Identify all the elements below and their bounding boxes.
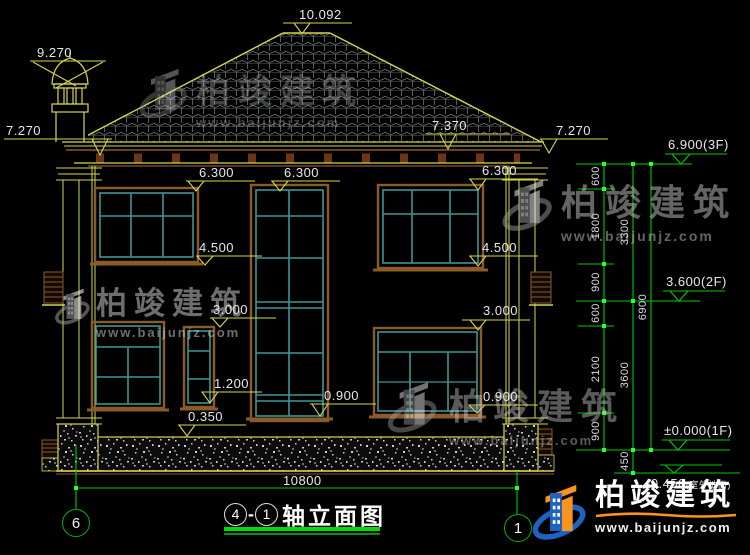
title-axis-circle-1: 1 bbox=[255, 503, 278, 526]
marker-head1-right: 3.000 bbox=[483, 303, 518, 318]
footer-brand: 柏竣建筑 bbox=[595, 480, 737, 512]
marker-sill1-right: 0.900 bbox=[483, 389, 518, 404]
plinth-base bbox=[56, 424, 554, 474]
cornice bbox=[62, 142, 544, 166]
marker-eave-right: 7.270 bbox=[556, 123, 591, 138]
marker-head2-right: 6.300 bbox=[482, 163, 517, 178]
drawing-canvas bbox=[0, 0, 750, 555]
level-1f: ±0.000(1F) bbox=[664, 423, 733, 438]
chimney bbox=[52, 52, 88, 142]
marker-ridge: 10.092 bbox=[299, 7, 342, 22]
window-stair-center bbox=[246, 185, 333, 421]
grid-bubble-6-label: 6 bbox=[72, 515, 80, 532]
window-1f-left bbox=[87, 322, 169, 410]
title-dash: - bbox=[248, 504, 254, 525]
title-underline-thin bbox=[224, 533, 380, 535]
window-1f-small bbox=[180, 327, 218, 409]
grid-bubble-1-label: 1 bbox=[514, 520, 522, 537]
window-1f-right bbox=[369, 328, 486, 417]
footer-logo: 柏竣建筑 www.baijunjz.com bbox=[531, 480, 737, 546]
windows bbox=[87, 185, 488, 421]
louver-2f-left bbox=[42, 272, 65, 305]
chain-seg: 1800 bbox=[590, 213, 602, 239]
chain-seg: 900 bbox=[590, 421, 602, 441]
chain-seg: 450 bbox=[619, 451, 631, 471]
marker-head2-left: 6.300 bbox=[199, 165, 234, 180]
level-2f: 3.600(2F) bbox=[666, 274, 727, 289]
marker-sill2-left: 4.500 bbox=[199, 240, 234, 255]
marker-sill1-small: 1.200 bbox=[214, 376, 249, 391]
marker-plinth-top: 0.350 bbox=[188, 409, 223, 424]
footer-underline-swoosh bbox=[595, 512, 737, 518]
chain-seg: 600 bbox=[590, 303, 602, 323]
chain-seg: 600 bbox=[590, 166, 602, 186]
footer-logo-icon bbox=[531, 480, 589, 546]
marker-eave-left: 7.270 bbox=[6, 123, 41, 138]
chain-seg: 3300 bbox=[619, 219, 631, 245]
marker-head1-left: 3.000 bbox=[213, 302, 248, 317]
title-text: 轴立面图 bbox=[282, 497, 386, 531]
window-2f-left bbox=[90, 188, 203, 264]
grid-bubble-1: 1 bbox=[504, 514, 532, 542]
marker-head2-center: 6.300 bbox=[284, 165, 319, 180]
drawing-title: 4 - 1 轴立面图 bbox=[224, 497, 386, 531]
louver-2f-right bbox=[529, 272, 553, 305]
marker-sill2-right: 4.500 bbox=[482, 240, 517, 255]
level-3f: 6.900(3F) bbox=[668, 137, 729, 152]
cad-elevation-drawing: 柏竣建筑 www.baijunjz.com 柏竣建筑 www.baijunjz.… bbox=[0, 0, 750, 555]
footer-url: www.baijunjz.com bbox=[595, 520, 737, 535]
marker-chimney: 9.270 bbox=[37, 45, 72, 60]
chain-seg: 2100 bbox=[590, 356, 602, 382]
marker-sill1-center: 0.900 bbox=[324, 388, 359, 403]
chain-seg: 900 bbox=[590, 272, 602, 292]
total-width: 10800 bbox=[283, 473, 322, 488]
title-underline-thick bbox=[224, 527, 380, 531]
grid-bubble-6: 6 bbox=[62, 509, 90, 537]
title-axis-circle-4: 4 bbox=[224, 503, 247, 526]
chain-seg: 6900 bbox=[637, 294, 649, 320]
chain-seg: 3600 bbox=[619, 362, 631, 388]
hip-roof bbox=[75, 33, 541, 142]
marker-slope-right: 7.370 bbox=[432, 118, 467, 133]
